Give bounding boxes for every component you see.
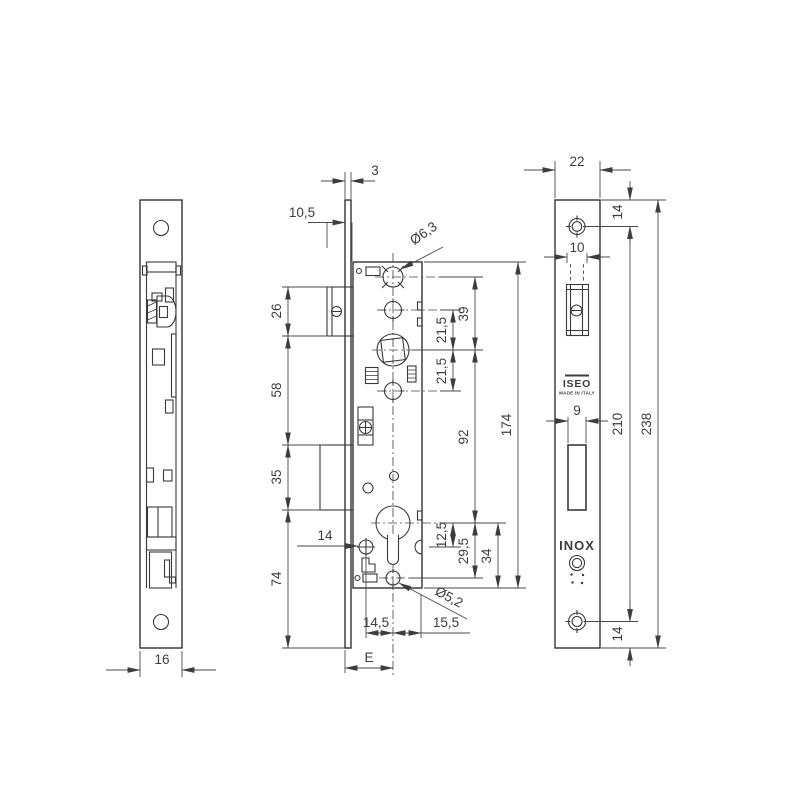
brand-logo: ISEO MADE IN ITALY bbox=[559, 375, 595, 396]
deadbolt-slot bbox=[568, 445, 586, 510]
spring-block-right bbox=[408, 366, 417, 382]
dim-hole-to-follower: 39 bbox=[456, 306, 471, 321]
side-view: 16 bbox=[106, 200, 216, 677]
front-dimension-lines bbox=[288, 181, 518, 668]
cylinder-screw bbox=[357, 538, 375, 556]
dim-top-hole-dia: Ø6,3 bbox=[407, 219, 440, 248]
latch-bolt bbox=[327, 287, 353, 336]
dim-cylinder-to-screw: 29,5 bbox=[456, 538, 471, 564]
dim-backset: E bbox=[364, 650, 373, 665]
dim-follower-to-cylinder: 92 bbox=[456, 429, 471, 444]
mark-dot-4 bbox=[581, 582, 583, 584]
dim-bolt-cutout: 9 bbox=[573, 403, 581, 418]
deadbolt bbox=[320, 445, 353, 510]
faceplate-bottom-screw bbox=[566, 610, 589, 633]
pin-hole-center bbox=[390, 472, 399, 481]
drawing-canvas: 16 bbox=[0, 0, 800, 800]
faceplate-latch bbox=[567, 285, 589, 336]
made-in-label: MADE IN ITALY bbox=[559, 391, 595, 396]
dim-screw-spacing: 210 bbox=[610, 413, 625, 436]
mark-dot-2 bbox=[582, 574, 584, 576]
dim-case-height: 174 bbox=[499, 413, 514, 436]
dim-top-screw-offset: 14 bbox=[610, 204, 625, 220]
lock-technical-drawing: 16 bbox=[0, 0, 800, 800]
pin-hole-left bbox=[363, 483, 373, 493]
dim-latch-to-bolt: 58 bbox=[269, 382, 284, 397]
case-rivet-top bbox=[357, 269, 362, 274]
spring-block-left bbox=[366, 368, 379, 384]
material-label: INOX bbox=[559, 538, 595, 553]
dim-bolt-height: 35 bbox=[269, 469, 284, 484]
case-slot-top bbox=[366, 267, 380, 276]
stamp-circle bbox=[570, 556, 585, 571]
dim-bottom-screw-offset: 14 bbox=[610, 626, 625, 642]
case-slot-bottom bbox=[363, 574, 377, 582]
faceplate-edge bbox=[345, 200, 351, 648]
dim-follower-up: 21,5 bbox=[434, 317, 449, 343]
dim-axis-to-edge: 15,5 bbox=[433, 615, 459, 630]
dim-follower-down: 21,5 bbox=[434, 358, 449, 384]
case-rivet-bottom bbox=[355, 576, 360, 581]
dim-latch-height: 26 bbox=[269, 303, 284, 318]
dim-side-width: 16 bbox=[154, 652, 169, 667]
front-extension-lines bbox=[282, 172, 526, 673]
dim-latch-projection: 10,5 bbox=[289, 205, 315, 220]
dim-cylinder-to-notch: 12,5 bbox=[434, 522, 449, 548]
side-top-hole bbox=[154, 221, 169, 236]
stop-bracket bbox=[362, 558, 375, 572]
side-bottom-hole bbox=[154, 615, 169, 630]
faceplate-top-screw bbox=[566, 216, 588, 238]
dim-plate-width: 22 bbox=[569, 154, 584, 169]
front-view: 3 10,5 26 58 35 74 Ø6,3 39 21,5 21,5 92 … bbox=[269, 163, 526, 678]
brand-name: ISEO bbox=[563, 378, 591, 390]
faceplate bbox=[555, 200, 600, 648]
dim-screw-inset: 14 bbox=[317, 528, 333, 543]
dim-latch-cutout: 10 bbox=[569, 240, 584, 255]
mark-dot-3 bbox=[571, 581, 573, 583]
side-mechanism bbox=[143, 262, 181, 588]
edge-notch bbox=[415, 540, 422, 554]
mark-dot-1 bbox=[570, 573, 572, 575]
dim-plate-height: 238 bbox=[639, 413, 654, 436]
dim-screw-to-axis: 14,5 bbox=[363, 615, 389, 630]
faceplate-dimension-lines bbox=[524, 170, 658, 666]
dim-plate-thickness: 3 bbox=[371, 163, 379, 178]
dim-cylinder-to-case-bottom: 34 bbox=[479, 548, 494, 564]
faceplate-view: ISEO MADE IN ITALY INOX bbox=[524, 154, 666, 666]
dim-bolt-to-bottom: 74 bbox=[269, 571, 284, 587]
adjuster-unit bbox=[358, 407, 373, 445]
